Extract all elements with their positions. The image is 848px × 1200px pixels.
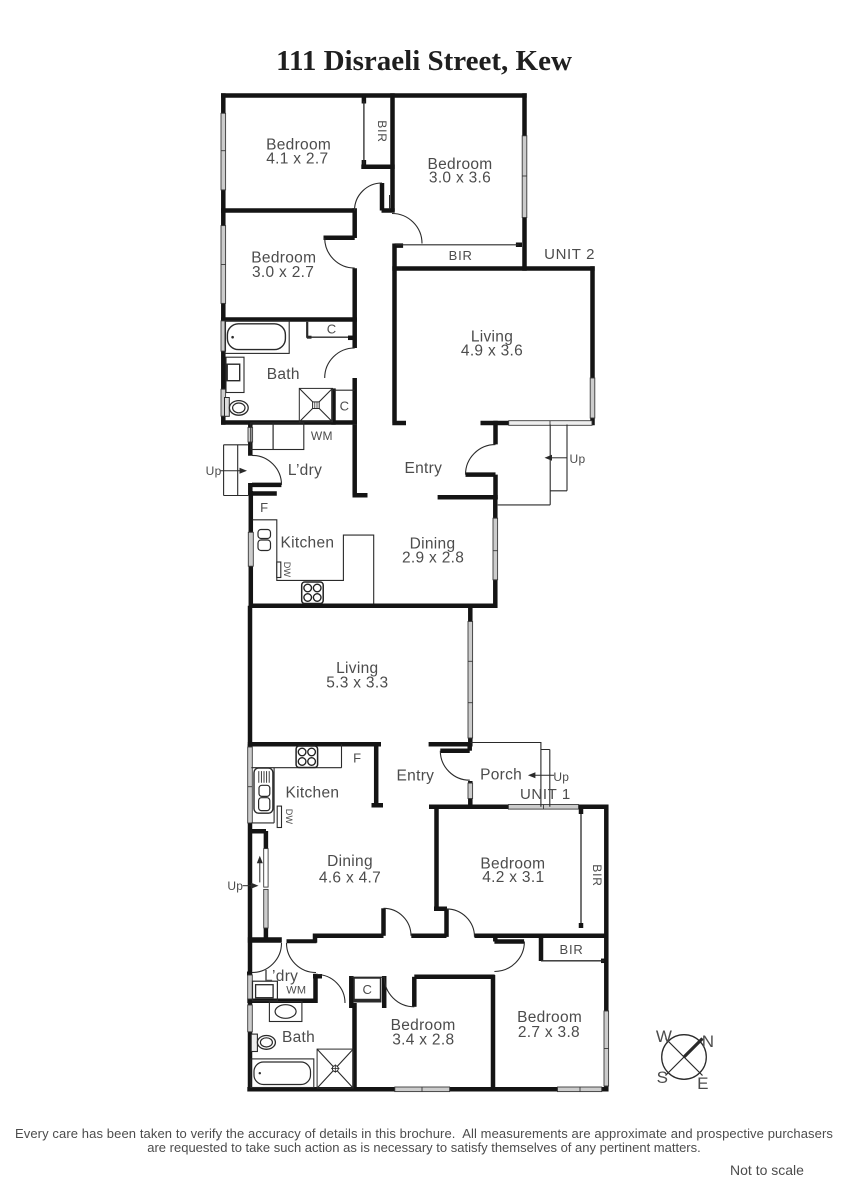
svg-text:N: N xyxy=(702,1032,715,1051)
svg-text:Bath: Bath xyxy=(267,366,300,383)
svg-text:4.6 x 4.7: 4.6 x 4.7 xyxy=(319,869,381,886)
svg-text:WM: WM xyxy=(286,984,306,996)
svg-text:UNIT 2: UNIT 2 xyxy=(544,246,595,263)
svg-text:C: C xyxy=(362,982,372,997)
svg-text:Not to scale: Not to scale xyxy=(730,1162,804,1178)
svg-text:BIR: BIR xyxy=(590,864,604,886)
svg-text:Entry: Entry xyxy=(404,460,442,477)
svg-text:S: S xyxy=(657,1068,669,1087)
svg-text:Kitchen: Kitchen xyxy=(285,784,339,801)
svg-text:W: W xyxy=(656,1027,672,1046)
svg-text:C: C xyxy=(340,399,350,414)
svg-text:BIR: BIR xyxy=(375,120,389,142)
svg-text:111 Disraeli Street, Kew: 111 Disraeli Street, Kew xyxy=(276,45,572,77)
svg-text:4.2 x 3.1: 4.2 x 3.1 xyxy=(482,869,544,886)
svg-text:4.1 x 2.7: 4.1 x 2.7 xyxy=(266,151,328,168)
svg-text:Every care has been taken to v: Every care has been taken to verify the … xyxy=(15,1126,833,1141)
svg-text:BIR: BIR xyxy=(449,248,473,263)
svg-text:WM: WM xyxy=(311,429,333,443)
svg-text:Up: Up xyxy=(206,464,222,478)
svg-text:F: F xyxy=(260,500,268,515)
svg-text:L’dry: L’dry xyxy=(288,462,322,479)
svg-text:3.4 x 2.8: 3.4 x 2.8 xyxy=(392,1032,454,1049)
svg-text:DW: DW xyxy=(282,562,292,578)
svg-text:2.7 x 3.8: 2.7 x 3.8 xyxy=(518,1024,580,1041)
svg-text:E: E xyxy=(697,1074,709,1093)
svg-text:5.3 x 3.3: 5.3 x 3.3 xyxy=(326,675,388,692)
svg-text:3.0 x 3.6: 3.0 x 3.6 xyxy=(429,169,491,186)
svg-text:Kitchen: Kitchen xyxy=(280,535,334,552)
svg-text:Up: Up xyxy=(553,770,569,784)
svg-text:C: C xyxy=(327,322,337,337)
svg-text:are requested to take such act: are requested to take such action as is … xyxy=(147,1140,701,1155)
svg-text:Porch: Porch xyxy=(480,766,522,783)
svg-text:BIR: BIR xyxy=(560,942,584,957)
svg-text:2.9 x 2.8: 2.9 x 2.8 xyxy=(402,549,464,566)
svg-text:F: F xyxy=(353,751,361,766)
svg-text:Entry: Entry xyxy=(397,768,435,785)
svg-text:UNIT 1: UNIT 1 xyxy=(520,786,571,803)
svg-text:Bath: Bath xyxy=(282,1029,315,1046)
svg-text:3.0 x 2.7: 3.0 x 2.7 xyxy=(252,264,314,281)
svg-text:L’dry: L’dry xyxy=(264,968,298,985)
svg-text:Up: Up xyxy=(570,452,586,466)
svg-text:DW: DW xyxy=(284,809,294,825)
svg-text:Dining: Dining xyxy=(327,853,373,870)
svg-text:Up: Up xyxy=(227,879,243,893)
svg-text:4.9 x 3.6: 4.9 x 3.6 xyxy=(461,342,523,359)
